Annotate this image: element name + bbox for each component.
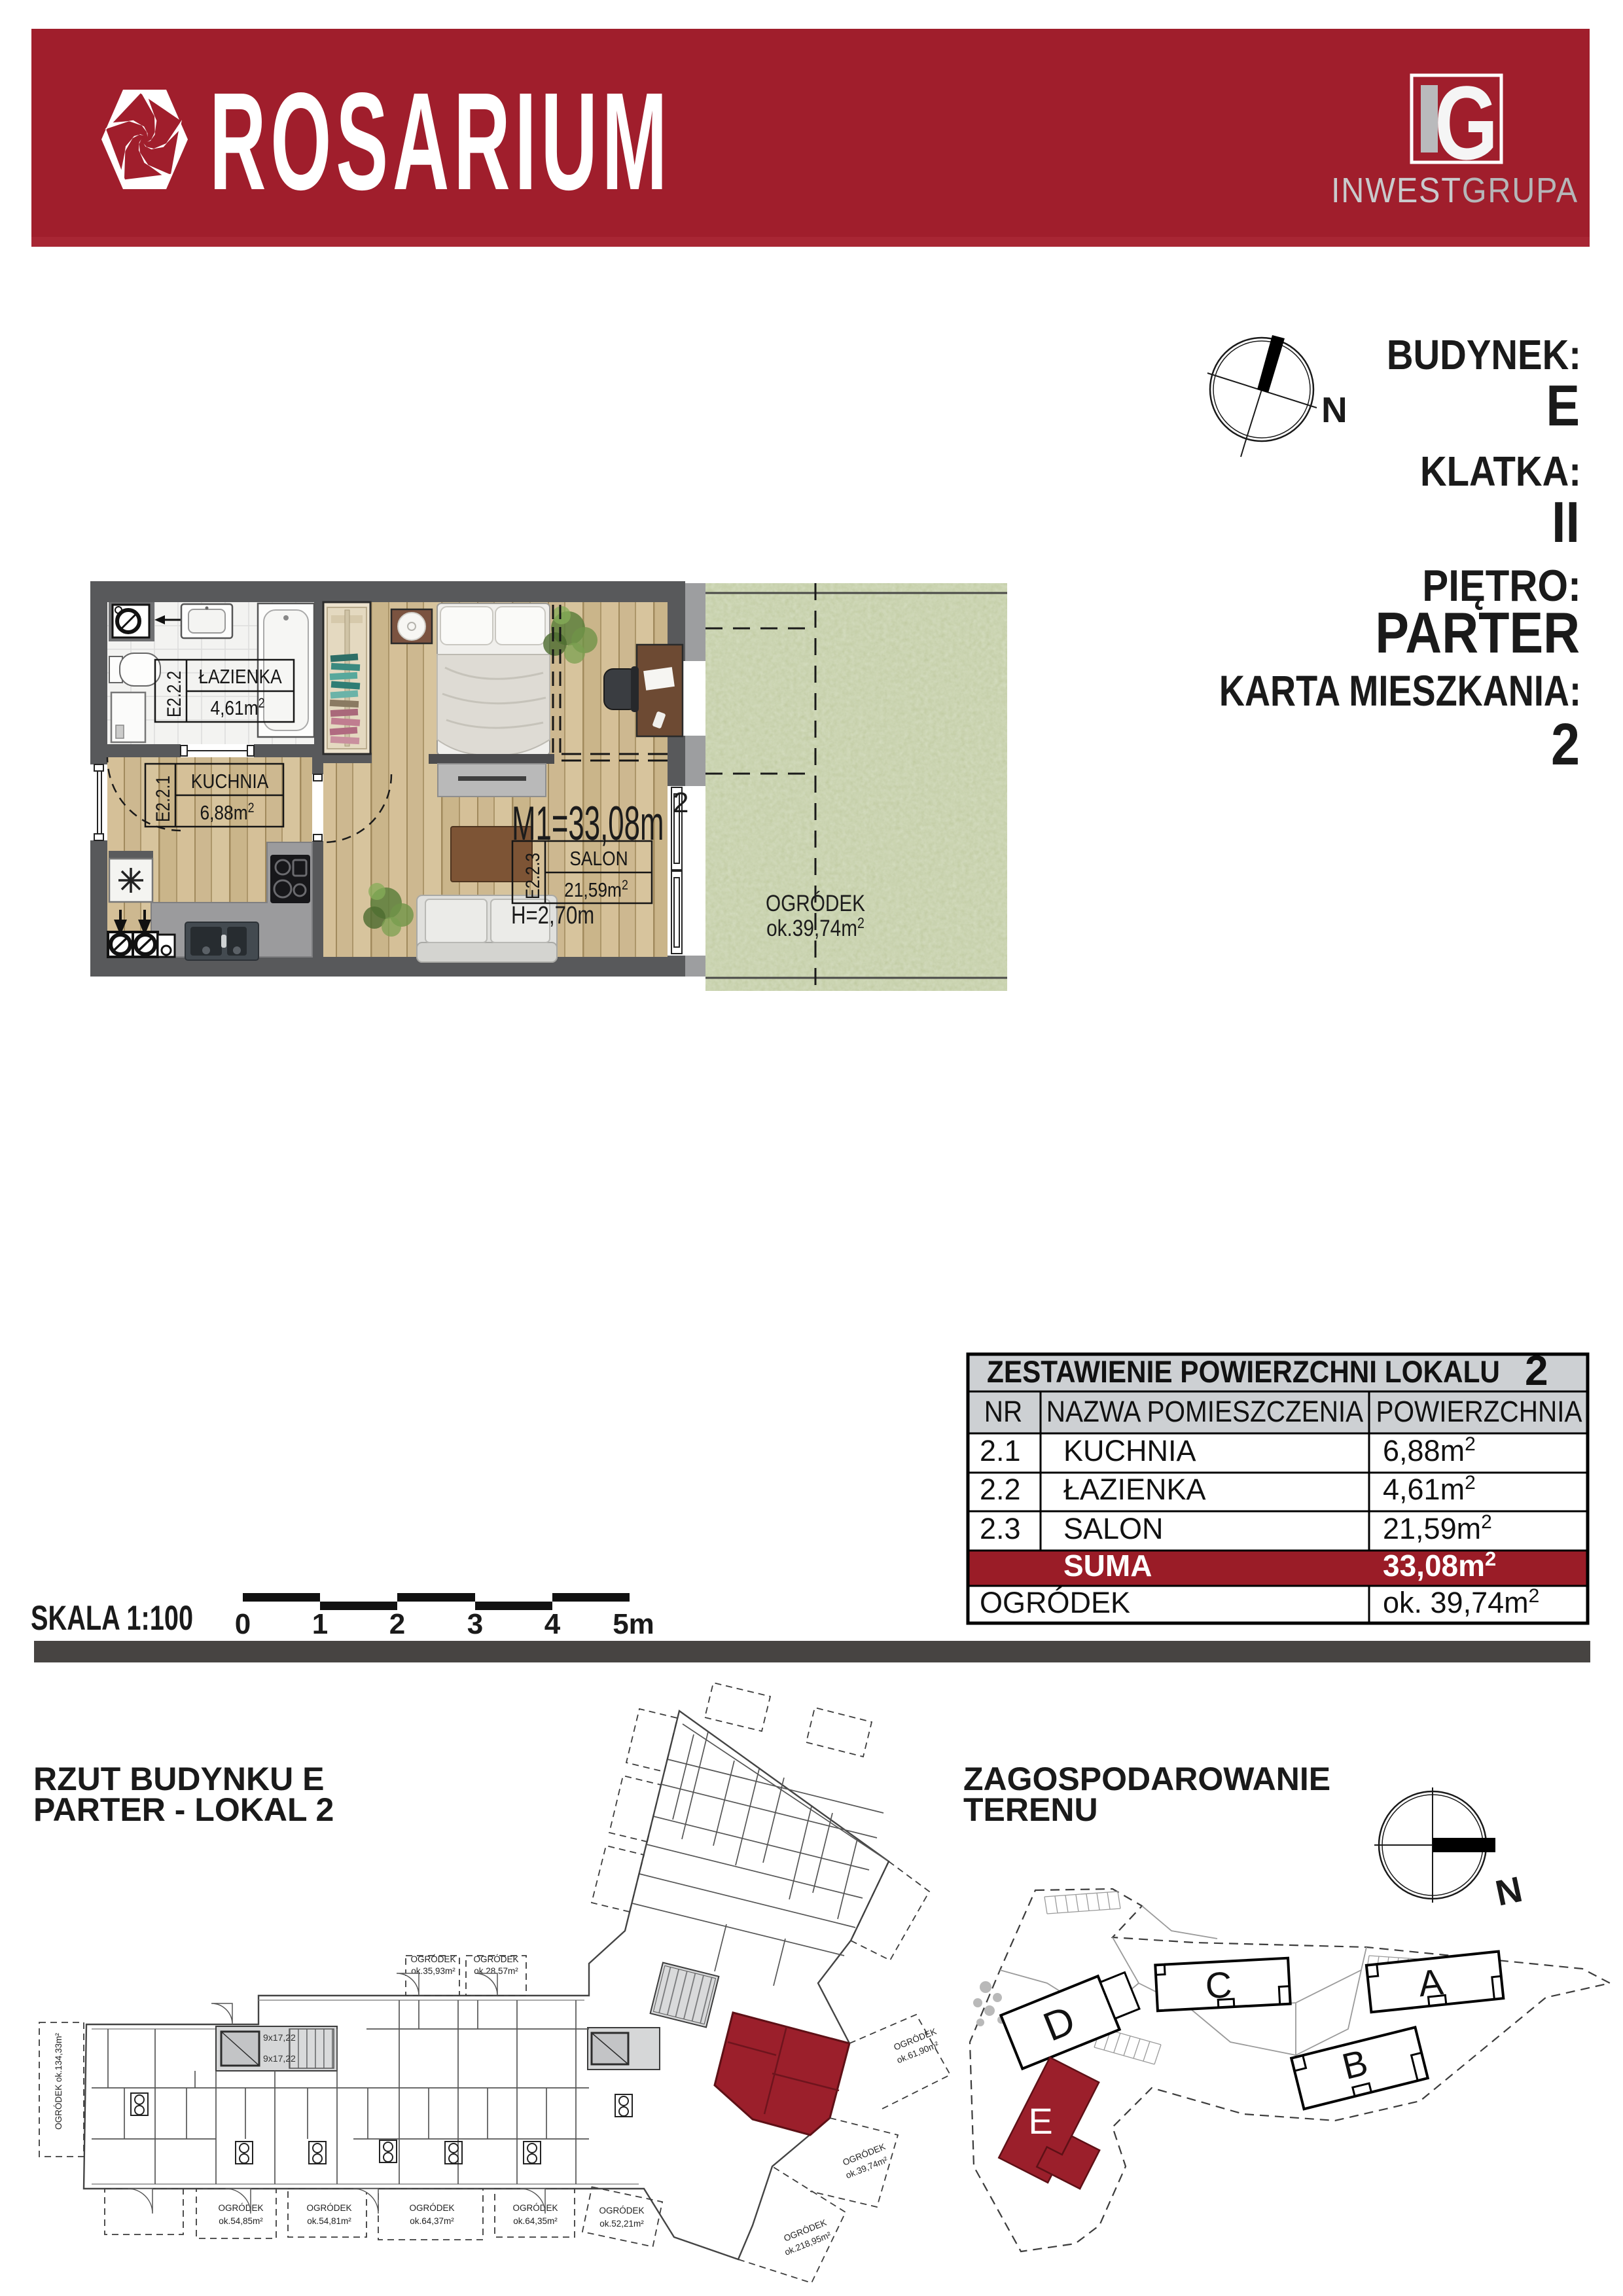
svg-text:ok.54,85m²: ok.54,85m² bbox=[219, 2216, 263, 2226]
svg-text:OGRÓDEK: OGRÓDEK bbox=[512, 2203, 558, 2213]
svg-text:NR: NR bbox=[984, 1395, 1022, 1428]
svg-text:ŁAZIENKA: ŁAZIENKA bbox=[198, 666, 282, 688]
svg-text:A: A bbox=[1416, 1961, 1445, 2005]
svg-text:ok.54,81m²: ok.54,81m² bbox=[307, 2216, 351, 2226]
svg-text:OGRÓDEK: OGRÓDEK bbox=[306, 2203, 351, 2213]
svg-text:E2.2.1: E2.2.1 bbox=[152, 776, 174, 822]
svg-text:OGRÓDEK: OGRÓDEK bbox=[766, 890, 865, 916]
svg-text:SKALA 1:100: SKALA 1:100 bbox=[31, 1598, 193, 1637]
svg-text:C: C bbox=[1204, 1964, 1233, 2006]
svg-text:OGRÓDEK: OGRÓDEK bbox=[218, 2203, 263, 2213]
svg-text:ŁAZIENKA: ŁAZIENKA bbox=[1063, 1473, 1206, 1506]
svg-text:ROSARIUM: ROSARIUM bbox=[209, 64, 671, 219]
svg-text:3: 3 bbox=[467, 1608, 483, 1640]
svg-text:OGRÓDEK: OGRÓDEK bbox=[409, 2203, 454, 2213]
svg-text:OGRÓDEK: OGRÓDEK bbox=[473, 1954, 518, 1964]
svg-text:G: G bbox=[1435, 65, 1498, 181]
svg-text:6,88m2: 6,88m2 bbox=[200, 800, 254, 825]
svg-text:0: 0 bbox=[235, 1608, 251, 1640]
svg-text:H=2,70m: H=2,70m bbox=[511, 902, 594, 929]
svg-text:2.3: 2.3 bbox=[980, 1512, 1021, 1545]
svg-text:ok.52,21m²: ok.52,21m² bbox=[599, 2219, 644, 2229]
svg-text:INWESTGRUPA: INWESTGRUPA bbox=[1331, 170, 1578, 210]
svg-text:KARTA MIESZKANIA:: KARTA MIESZKANIA: bbox=[1219, 666, 1581, 715]
svg-text:2: 2 bbox=[1551, 711, 1580, 777]
svg-text:II: II bbox=[1552, 490, 1580, 554]
svg-text:M1=33,08m: M1=33,08m bbox=[512, 797, 664, 850]
svg-text:E: E bbox=[1546, 373, 1580, 438]
svg-text:PARTER - LOKAL 2: PARTER - LOKAL 2 bbox=[33, 1791, 334, 1828]
svg-text:9x17,22: 9x17,22 bbox=[263, 2053, 296, 2064]
svg-text:4: 4 bbox=[544, 1608, 561, 1640]
svg-text:BUDYNEK:: BUDYNEK: bbox=[1387, 331, 1581, 378]
svg-text:PARTER: PARTER bbox=[1375, 600, 1580, 665]
svg-text:POWIERZCHNIA: POWIERZCHNIA bbox=[1376, 1395, 1582, 1428]
svg-text:N: N bbox=[1321, 389, 1347, 430]
svg-text:4,61m2: 4,61m2 bbox=[1383, 1472, 1476, 1506]
svg-text:2: 2 bbox=[389, 1608, 405, 1640]
svg-text:SALON: SALON bbox=[569, 848, 628, 870]
svg-text:TERENU: TERENU bbox=[963, 1791, 1098, 1828]
svg-text:E2.2.2: E2.2.2 bbox=[163, 671, 185, 717]
svg-text:2: 2 bbox=[1525, 1347, 1548, 1394]
svg-text:SUMA: SUMA bbox=[1063, 1549, 1152, 1583]
svg-text:33,08m2: 33,08m2 bbox=[1383, 1547, 1496, 1583]
svg-text:E2.2.3: E2.2.3 bbox=[522, 853, 544, 899]
svg-text:NAZWA POMIESZCZENIA: NAZWA POMIESZCZENIA bbox=[1046, 1395, 1364, 1428]
svg-text:21,59m2: 21,59m2 bbox=[564, 878, 628, 902]
svg-text:1: 1 bbox=[312, 1608, 328, 1640]
svg-text:OGRÓDEK: OGRÓDEK bbox=[410, 1954, 455, 1964]
svg-text:9x17,22: 9x17,22 bbox=[263, 2032, 296, 2043]
svg-text:KUCHNIA: KUCHNIA bbox=[1063, 1434, 1196, 1467]
svg-text:OGRÓDEK ok.134,33m²: OGRÓDEK ok.134,33m² bbox=[54, 2033, 63, 2130]
svg-text:ZESTAWIENIE POWIERZCHNI LOKALU: ZESTAWIENIE POWIERZCHNI LOKALU bbox=[987, 1355, 1500, 1390]
svg-text:ok. 39,74m2: ok. 39,74m2 bbox=[1383, 1585, 1539, 1619]
svg-text:ok.64,37m²: ok.64,37m² bbox=[410, 2216, 454, 2226]
svg-text:6,88m2: 6,88m2 bbox=[1383, 1433, 1476, 1467]
svg-text:21,59m2: 21,59m2 bbox=[1383, 1511, 1492, 1545]
svg-text:4,61m2: 4,61m2 bbox=[210, 696, 264, 720]
svg-text:OGRÓDEK: OGRÓDEK bbox=[599, 2206, 644, 2215]
svg-text:ok.64,35m²: ok.64,35m² bbox=[513, 2216, 558, 2226]
svg-text:5m: 5m bbox=[613, 1608, 654, 1640]
svg-text:KLATKA:: KLATKA: bbox=[1420, 448, 1581, 495]
svg-text:ok.39,74m2: ok.39,74m2 bbox=[766, 915, 865, 941]
svg-text:SALON: SALON bbox=[1063, 1512, 1164, 1545]
svg-text:2: 2 bbox=[673, 787, 688, 819]
svg-text:KUCHNIA: KUCHNIA bbox=[191, 770, 269, 793]
svg-text:E: E bbox=[1028, 2100, 1052, 2142]
svg-text:2.2: 2.2 bbox=[980, 1473, 1021, 1506]
svg-text:2.1: 2.1 bbox=[980, 1434, 1021, 1467]
svg-text:OGRÓDEK: OGRÓDEK bbox=[980, 1586, 1130, 1619]
